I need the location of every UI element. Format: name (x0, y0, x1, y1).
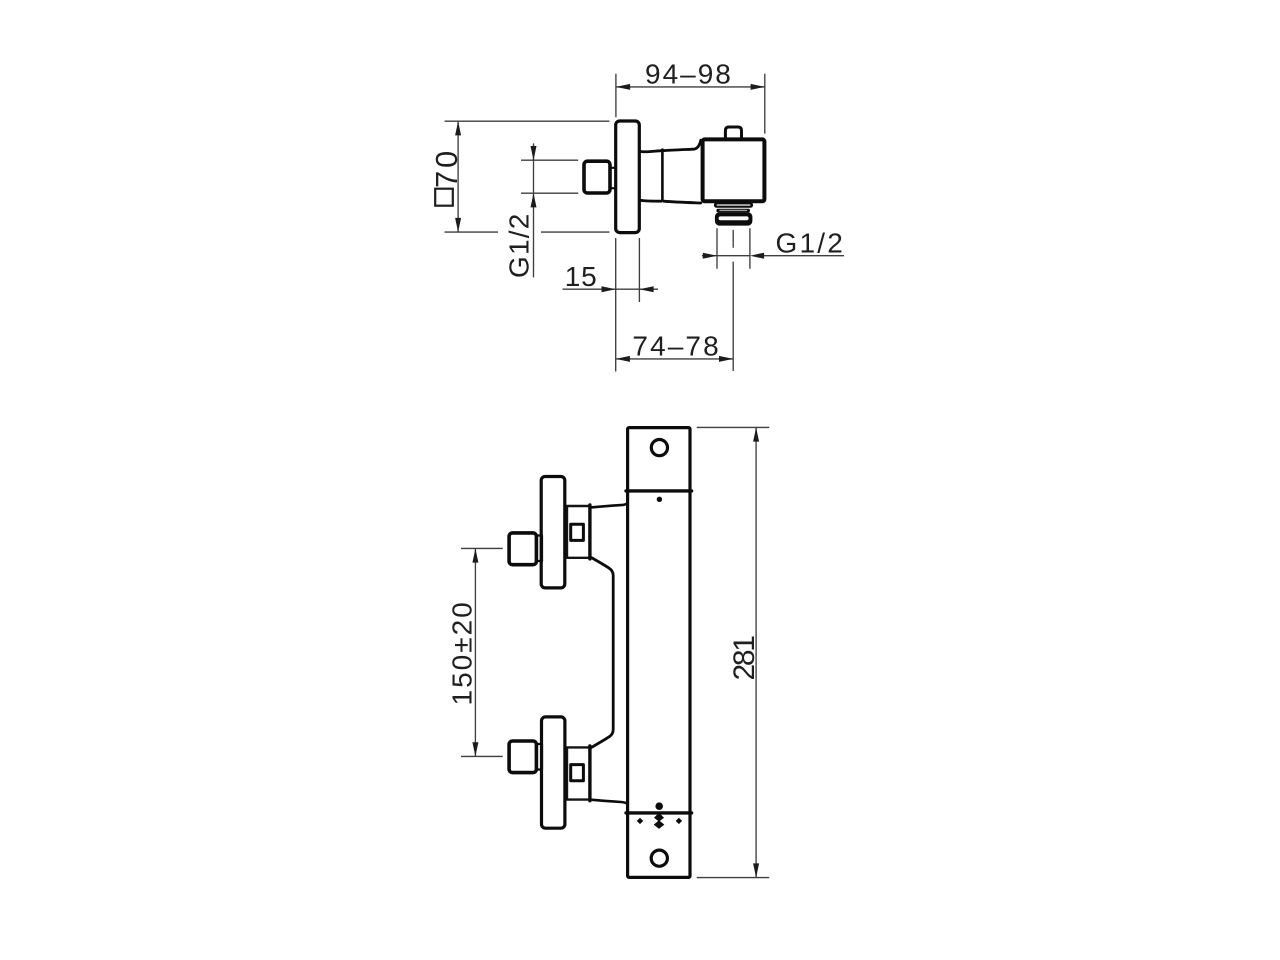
svg-text:15: 15 (565, 261, 598, 292)
svg-text:74–78: 74–78 (632, 330, 720, 361)
svg-text:G1/2: G1/2 (503, 212, 534, 278)
svg-text:94–98: 94–98 (645, 59, 733, 90)
svg-text:70: 70 (429, 148, 464, 188)
svg-text:150±20: 150±20 (446, 600, 477, 705)
svg-text:281: 281 (728, 636, 761, 681)
svg-text:G1/2: G1/2 (776, 227, 846, 258)
